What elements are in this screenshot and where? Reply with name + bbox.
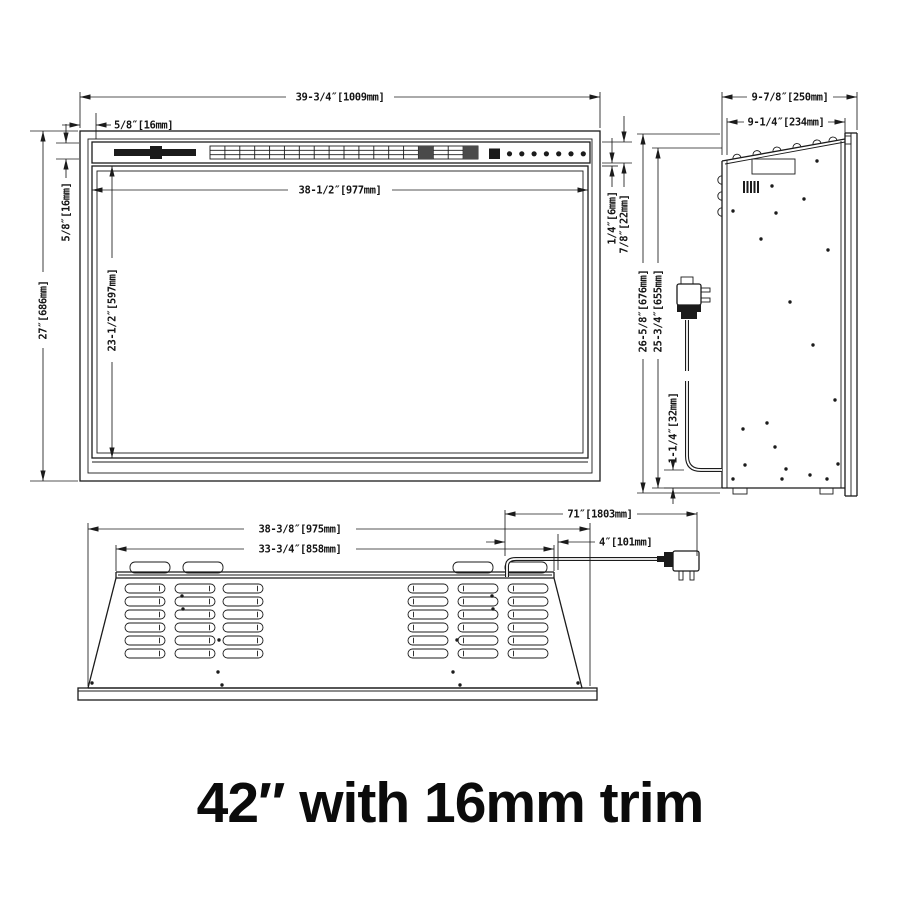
dim-front-opening-height: 23-1/2″[597mm] <box>107 269 119 352</box>
side-view <box>677 133 857 496</box>
dim-bottom-base-width: 38-3/8″[975mm] <box>259 524 342 536</box>
dim-front-glass-gap: 1/4″[6mm] <box>607 191 619 244</box>
dim-front-overall-width: 39-3/4″[1009mm] <box>296 92 385 104</box>
dim-front-trim-width: 5/8″[16mm] <box>114 120 173 132</box>
plug-prong <box>679 571 683 580</box>
side-vent-slots <box>744 181 758 193</box>
louver-vents-left <box>125 584 263 658</box>
plug-prong <box>690 571 694 580</box>
plug-prong <box>701 298 710 302</box>
brand-logo-mark <box>114 146 196 159</box>
dim-cord-length: 71″[1803mm] <box>567 509 632 521</box>
heater-vent-grille <box>210 146 478 159</box>
plug-prong <box>701 288 710 292</box>
dim-front-overall-height: 27″[686mm] <box>38 280 50 339</box>
drawing-page: 39-3/4″[1009mm] 5/8″[16mm] 38-1/2″[977mm… <box>0 0 900 900</box>
power-button <box>489 149 500 160</box>
dim-cord-offset: 4″[101mm] <box>599 537 652 549</box>
power-cord-plug-side <box>677 277 722 470</box>
foot-tab <box>733 488 747 494</box>
front-trim-edge <box>845 133 857 496</box>
dim-side-overall-height: 26-5/8″[676mm] <box>638 270 650 353</box>
glass-opening <box>92 166 588 458</box>
foot-tab <box>820 488 833 494</box>
screw-dots <box>90 594 579 686</box>
dim-side-overall-depth: 9-7/8″[250mm] <box>752 92 829 104</box>
front-view <box>80 131 600 481</box>
side-view-dimensions: 9-7/8″[250mm] 9-1/4″[234mm] 26-5/8″[676m… <box>637 92 857 505</box>
control-buttons <box>489 149 586 160</box>
dim-side-cord-clearance: 1-1/4″[32mm] <box>668 392 680 463</box>
dim-front-trim-height: 5/8″[16mm] <box>61 182 73 241</box>
rivet-dots <box>731 159 839 480</box>
dim-front-inner-width: 38-1/2″[977mm] <box>299 185 382 197</box>
dim-bottom-vent-width: 33-3/4″[858mm] <box>259 544 342 556</box>
louver-vents-right <box>408 584 548 658</box>
power-cord-plug-bottom <box>507 551 699 580</box>
bottom-view <box>78 551 699 700</box>
page-title: 42″ with 16mm trim <box>0 770 900 836</box>
spec-label-plate <box>752 159 795 174</box>
dim-front-top-bar-height: 7/8″[22mm] <box>619 194 631 253</box>
dim-side-body-depth: 9-1/4″[234mm] <box>748 117 825 129</box>
technical-drawing-canvas: 39-3/4″[1009mm] 5/8″[16mm] 38-1/2″[977mm… <box>0 0 900 900</box>
dim-side-body-height: 25-3/4″[655mm] <box>653 270 665 353</box>
